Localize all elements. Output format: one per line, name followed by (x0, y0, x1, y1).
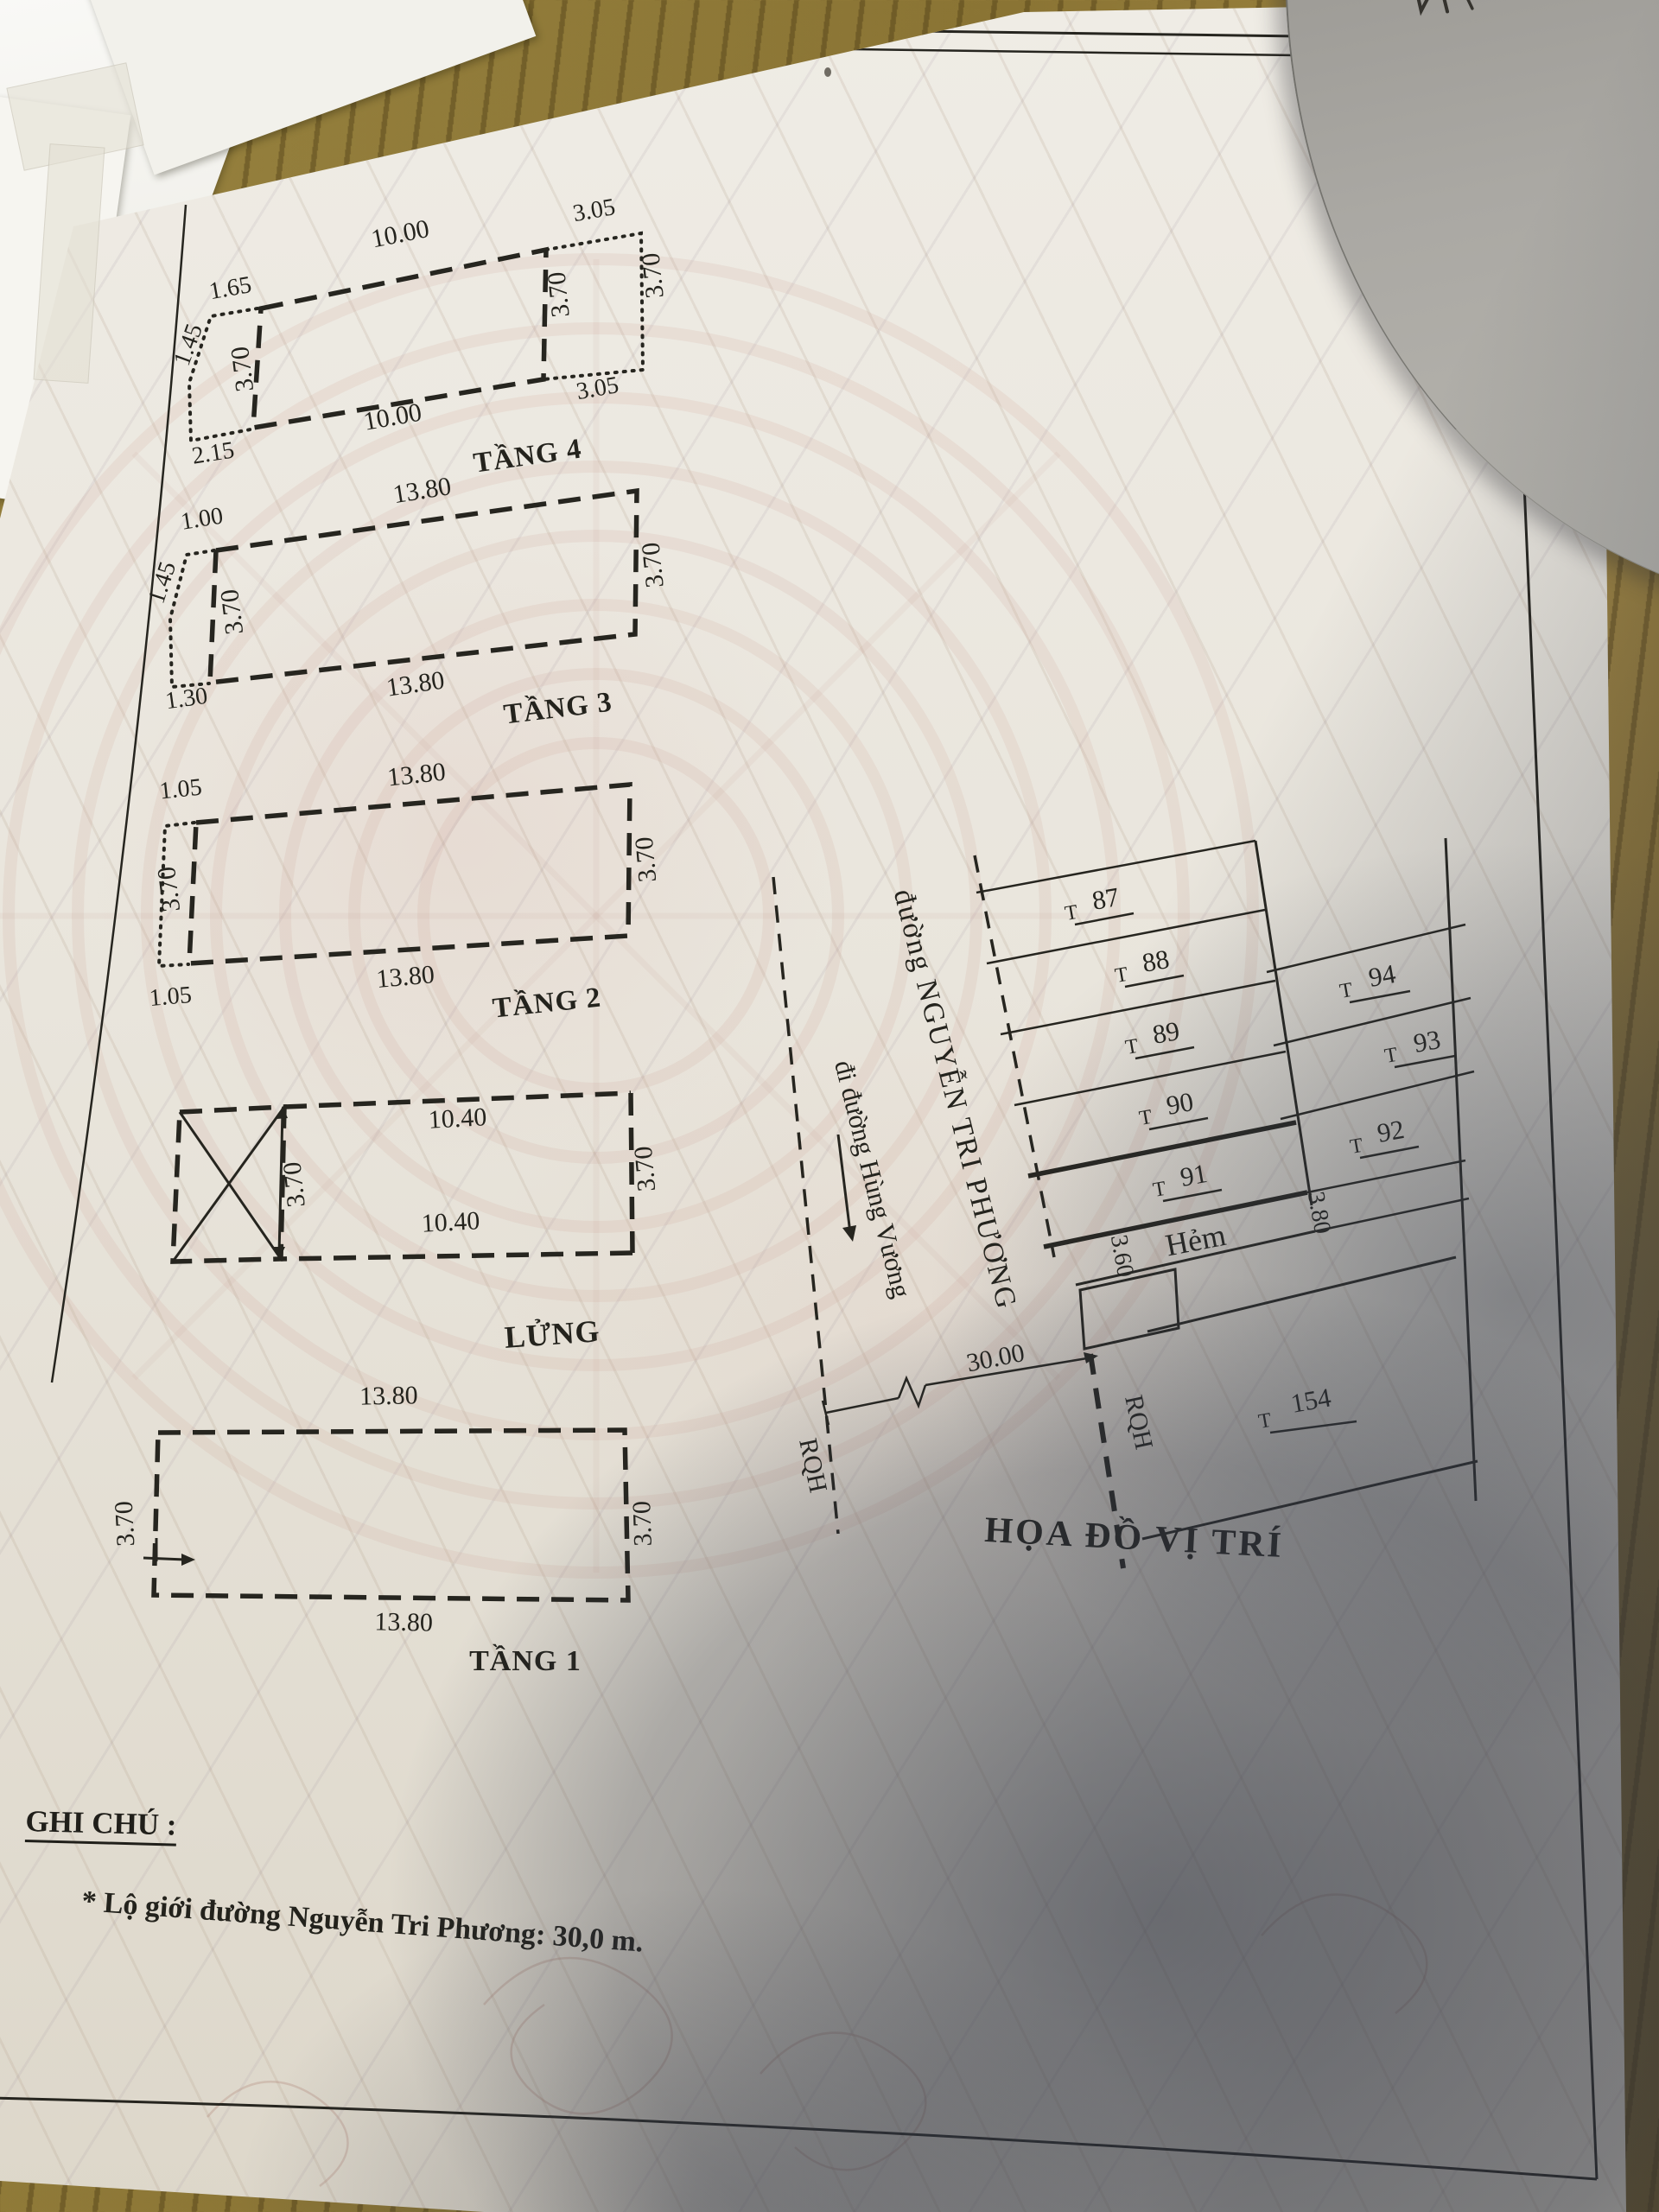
ink-speck-small (824, 67, 831, 77)
lot-94-number: 94 (1366, 958, 1398, 993)
tang4-ext-left-top: 1.65 (207, 271, 254, 305)
tang4-dim-right-inner: 3.70 (542, 270, 575, 319)
road-width-value: 30.00 (964, 1338, 1027, 1377)
lot-89-number: 89 (1150, 1015, 1182, 1050)
lot-89-prefix: T (1124, 1035, 1141, 1059)
tang2-dim-left: 3.70 (152, 865, 186, 913)
floor-plan-tang-2: 13.80 13.80 3.70 3.70 1.05 1.05 TẦNG 2 (130, 769, 734, 1037)
tang3-label: TẦNG 3 (502, 684, 614, 731)
planning-label-mid: RQH (1119, 1393, 1158, 1452)
tang3-outline (210, 491, 637, 683)
street-name-label: đường NGUYỄN TRI PHƯƠNG (887, 886, 1025, 1313)
floor-plan-tang-3: 13.80 13.80 3.70 3.70 1.00 1.45 1.30 TẦN… (138, 480, 743, 739)
lung-dim-mid: 3.70 (277, 1160, 310, 1209)
lot-93-prefix: T (1383, 1044, 1400, 1068)
lot-label-91: T 91 (1152, 1158, 1222, 1202)
lot-93-number: 93 (1411, 1024, 1443, 1058)
tang4-label: TẦNG 4 (471, 431, 583, 480)
site-location-map: đường NGUYỄN TRI PHƯƠNG đi đường Hùng Vư… (752, 842, 1659, 1620)
tang1-dim-top: 13.80 (359, 1381, 418, 1410)
tang2-label: TẦNG 2 (491, 980, 602, 1025)
lot-154-prefix: T (1257, 1409, 1274, 1433)
alley-width-right: 3.80 (1302, 1190, 1336, 1236)
lot-94-prefix: T (1338, 979, 1355, 1003)
tang2-ext-left-top: 1.05 (158, 774, 203, 805)
lot-87-prefix: T (1064, 901, 1080, 925)
tang3-ext-left-bottom: 1.30 (163, 683, 209, 715)
lot-division-lines (976, 838, 1478, 1539)
lung-dim-top: 10.40 (428, 1103, 487, 1134)
tang4-ext-right-top: 3.05 (571, 194, 618, 227)
tang4-dim-bottom: 10.00 (361, 398, 423, 436)
tang3-ext-left-top: 1.00 (179, 502, 225, 535)
tang1-entrance-arrow (143, 1538, 195, 1566)
tang1-dim-left: 3.70 (110, 1500, 141, 1547)
lot-154-number: 154 (1288, 1382, 1333, 1419)
lot-92-prefix: T (1349, 1135, 1365, 1159)
floor-plan-lung: 10.40 10.40 3.70 3.70 LỬNG (147, 1080, 700, 1370)
lot-label-88: T 88 (1114, 944, 1184, 988)
photo-of-document: { "photo": { "desk_color": "#8a7434", "p… (0, 0, 1659, 2212)
floor-plan-tang-1: 13.80 13.80 3.70 3.70 TẦNG 1 (112, 1378, 717, 1694)
tang1-dim-right: 3.70 (627, 1501, 658, 1548)
tang4-dim-right-outer: 3.70 (636, 251, 669, 300)
road-width-dimension: 30.00 (823, 1338, 1098, 1425)
bottom-border-line (0, 2098, 1597, 2179)
tang3-ext-left-side: 1.45 (143, 558, 182, 607)
planning-boundary-left-dashed (773, 877, 838, 1534)
notes-heading: GHI CHÚ : (25, 1804, 177, 1843)
lot-label-89: T 89 (1124, 1015, 1194, 1059)
tang2-ext-left-bottom: 1.05 (149, 982, 194, 1012)
street-direction-label: đi đường Hùng Vương (829, 1057, 917, 1300)
tang4-ext-left-bottom: 2.15 (190, 436, 236, 469)
lot-label-87: T 87 (1064, 881, 1134, 925)
tang3-dim-left: 3.70 (215, 588, 249, 636)
lot-91-number: 91 (1178, 1158, 1210, 1192)
lot-92-number: 92 (1375, 1114, 1407, 1148)
pen-mark-icon (1400, 0, 1486, 35)
lung-dim-bottom: 10.40 (421, 1206, 480, 1237)
alley-label: Hẻm (1163, 1217, 1229, 1263)
tang4-ext-left-side: 1.45 (168, 321, 208, 370)
tang4-dim-top: 10.00 (369, 214, 432, 253)
lot-90-number: 90 (1164, 1086, 1196, 1121)
lot-label-154: T 154 (1257, 1382, 1357, 1433)
lot-88-number: 88 (1140, 944, 1172, 978)
lot-label-93: T 93 (1383, 1024, 1455, 1068)
tang1-outline (154, 1430, 628, 1600)
lot-label-92: T 92 (1349, 1114, 1419, 1159)
tang4-dim-left: 3.70 (226, 345, 259, 393)
notes-heading-text: GHI CHÚ : (25, 1804, 177, 1847)
tang1-dim-bottom: 13.80 (374, 1607, 433, 1637)
lung-dim-right: 3.70 (629, 1145, 661, 1192)
lot-label-90: T 90 (1138, 1086, 1208, 1130)
floor-plan-tang-4: 10.00 10.00 3.70 3.70 3.70 1.65 1.45 2.1… (121, 199, 726, 493)
lot-88-prefix: T (1114, 963, 1130, 988)
tang3-dim-bottom: 13.80 (385, 666, 446, 702)
tang3-dim-right: 3.70 (636, 541, 669, 589)
tang2-outline (189, 785, 630, 963)
lot-90-prefix: T (1138, 1106, 1154, 1130)
tang2-dim-bottom: 13.80 (375, 960, 435, 994)
tang1-label: TẦNG 1 (469, 1643, 582, 1677)
alley-width-left: 3.60 (1105, 1233, 1139, 1280)
lung-label: LỬNG (504, 1313, 601, 1355)
lot-87-number: 87 (1090, 881, 1122, 916)
planning-label-left: RQH (793, 1436, 832, 1496)
tang2-dim-right: 3.70 (630, 836, 662, 883)
tang2-dim-top: 13.80 (386, 758, 448, 792)
lung-void-x-cross (173, 1107, 284, 1262)
lot-label-94: T 94 (1338, 958, 1410, 1003)
lot-91-prefix: T (1152, 1178, 1168, 1202)
